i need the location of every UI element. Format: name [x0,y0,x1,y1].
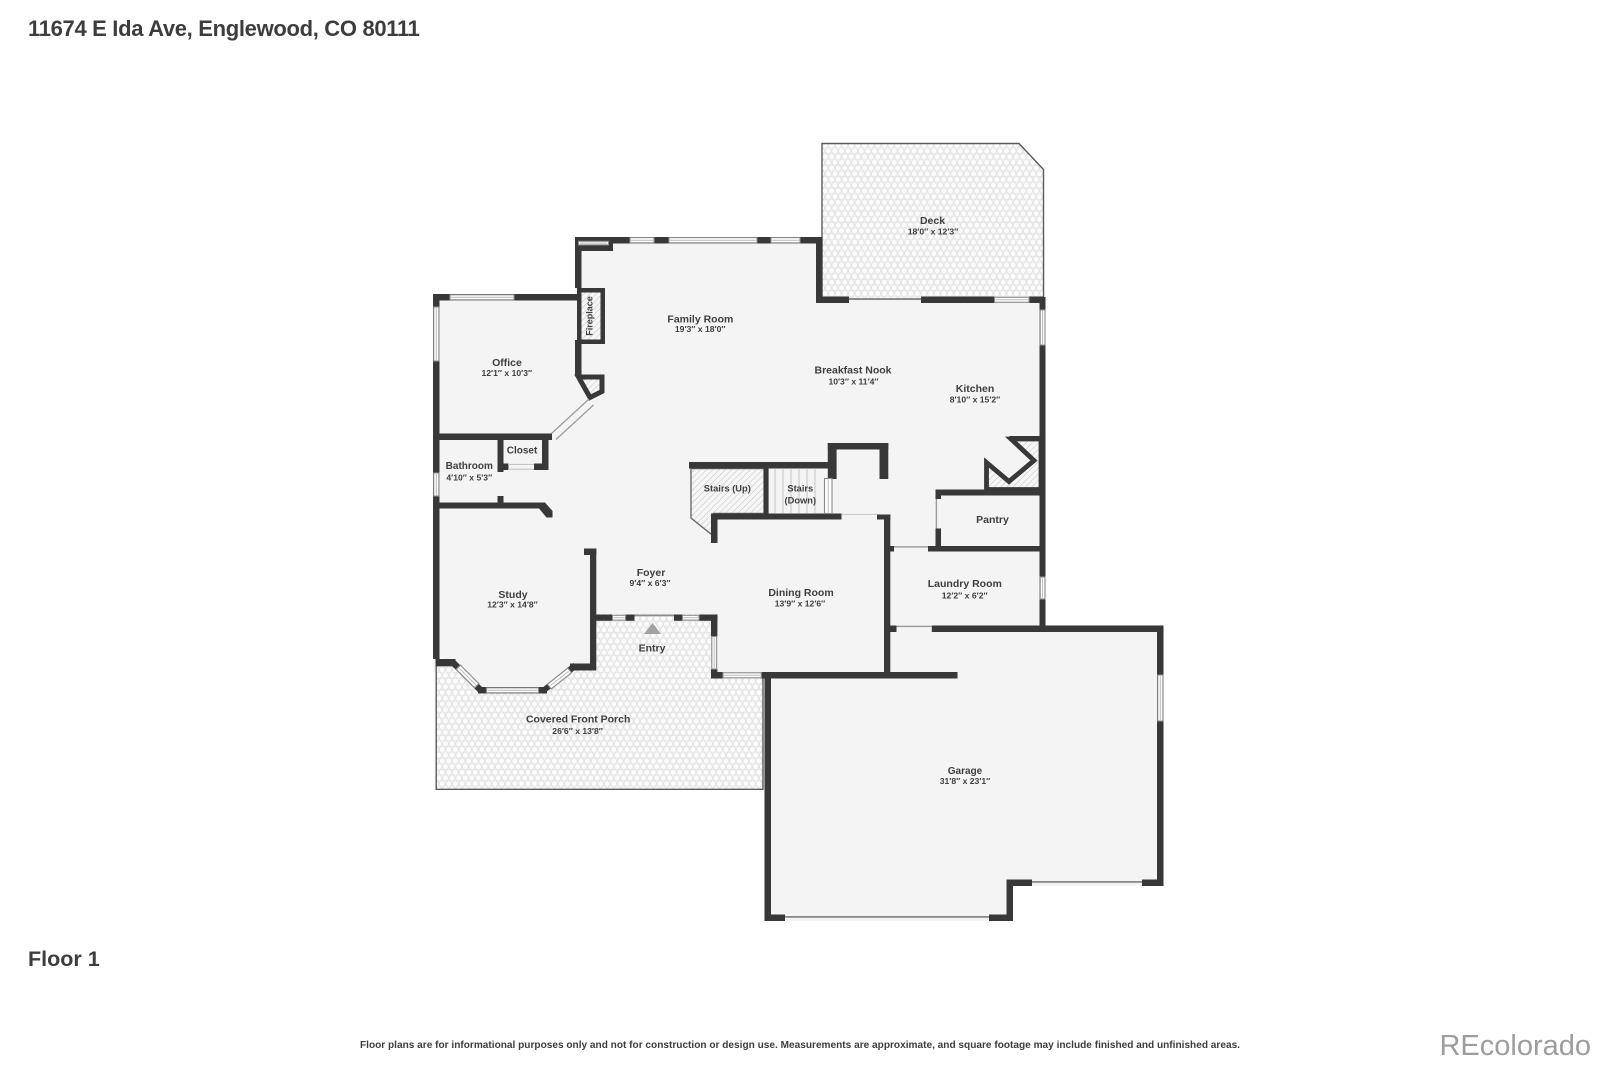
svg-text:Fireplace: Fireplace [585,296,595,336]
svg-text:Kitchen: Kitchen [956,383,995,395]
svg-text:Entry: Entry [639,642,666,654]
svg-text:Covered Front Porch: Covered Front Porch [526,713,630,725]
svg-text:9′4″ x 6′3″: 9′4″ x 6′3″ [629,578,670,588]
svg-text:Laundry Room: Laundry Room [928,578,1002,590]
svg-text:12′1″ x 10′3″: 12′1″ x 10′3″ [482,368,533,378]
svg-text:8′10″ x 15′2″: 8′10″ x 15′2″ [950,394,1001,404]
svg-text:Breakfast Nook: Breakfast Nook [814,365,891,377]
svg-text:(Down): (Down) [785,495,817,505]
svg-text:19′3″ x 18′0″: 19′3″ x 18′0″ [675,324,726,334]
svg-text:12′2″ x 6′2″: 12′2″ x 6′2″ [942,591,988,601]
svg-text:12′3″ x 14′8″: 12′3″ x 14′8″ [487,600,538,610]
svg-text:Dining Room: Dining Room [768,587,833,599]
svg-text:18′0″ x 12′3″: 18′0″ x 12′3″ [908,226,959,236]
svg-text:31′8″ x 23′1″: 31′8″ x 23′1″ [940,776,991,786]
svg-text:Pantry: Pantry [976,514,1009,526]
svg-text:Stairs (Up): Stairs (Up) [704,483,751,493]
svg-text:10′3″ x 11′4″: 10′3″ x 11′4″ [828,376,878,386]
svg-text:Deck: Deck [920,215,945,227]
svg-text:Closet: Closet [507,445,538,456]
svg-text:Bathroom: Bathroom [446,461,493,472]
svg-text:26′6″ x 13′8″: 26′6″ x 13′8″ [552,726,603,736]
svg-text:13′9″ x 12′6″: 13′9″ x 12′6″ [775,599,826,609]
svg-text:4′10″ x 5′3″: 4′10″ x 5′3″ [446,473,492,483]
svg-text:Stairs: Stairs [787,483,813,493]
